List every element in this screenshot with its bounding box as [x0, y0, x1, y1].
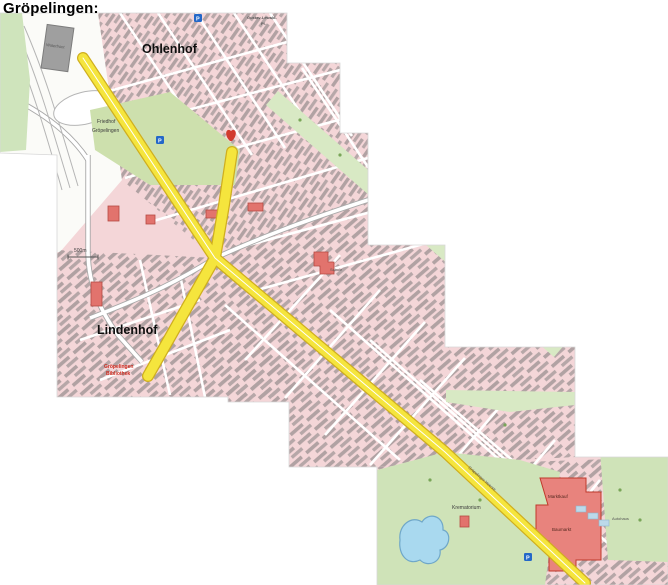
playground-label: Spielpl.: [312, 29, 325, 34]
square-label: Gustav-Lewald-: [247, 15, 277, 20]
district-label-lindenhof: Lindenhof: [97, 323, 158, 337]
parking-icon: P: [158, 138, 162, 144]
store-label: Baumarkt: [552, 527, 572, 532]
crematorium-label: Krematorium: [452, 505, 481, 511]
store-label: Marktkauf: [548, 494, 569, 499]
autohaus-label: Autohaus: [612, 516, 629, 521]
parking-icon: P: [196, 16, 200, 22]
cemetery-label: Friedhof: [97, 119, 116, 125]
map-canvas: P P P 500m Ohlenhof Lindenhof Friedhof G…: [0, 0, 668, 585]
cemetery-label: Gröpelingen: [92, 128, 119, 134]
map-tiles: P P P 500m Ohlenhof Lindenhof Friedhof G…: [0, 0, 668, 585]
page-title: Gröpelingen:: [3, 0, 99, 17]
school-label: Schule: [330, 267, 343, 272]
parking-icon: P: [526, 555, 530, 561]
terminus-label: Bibliothek: [106, 371, 130, 377]
square-label: Pl.: [261, 21, 266, 26]
terminus-label: Gröpelingen: [104, 364, 133, 370]
scale-label: 500m: [74, 248, 87, 254]
district-label-ohlenhof: Ohlenhof: [142, 42, 198, 56]
